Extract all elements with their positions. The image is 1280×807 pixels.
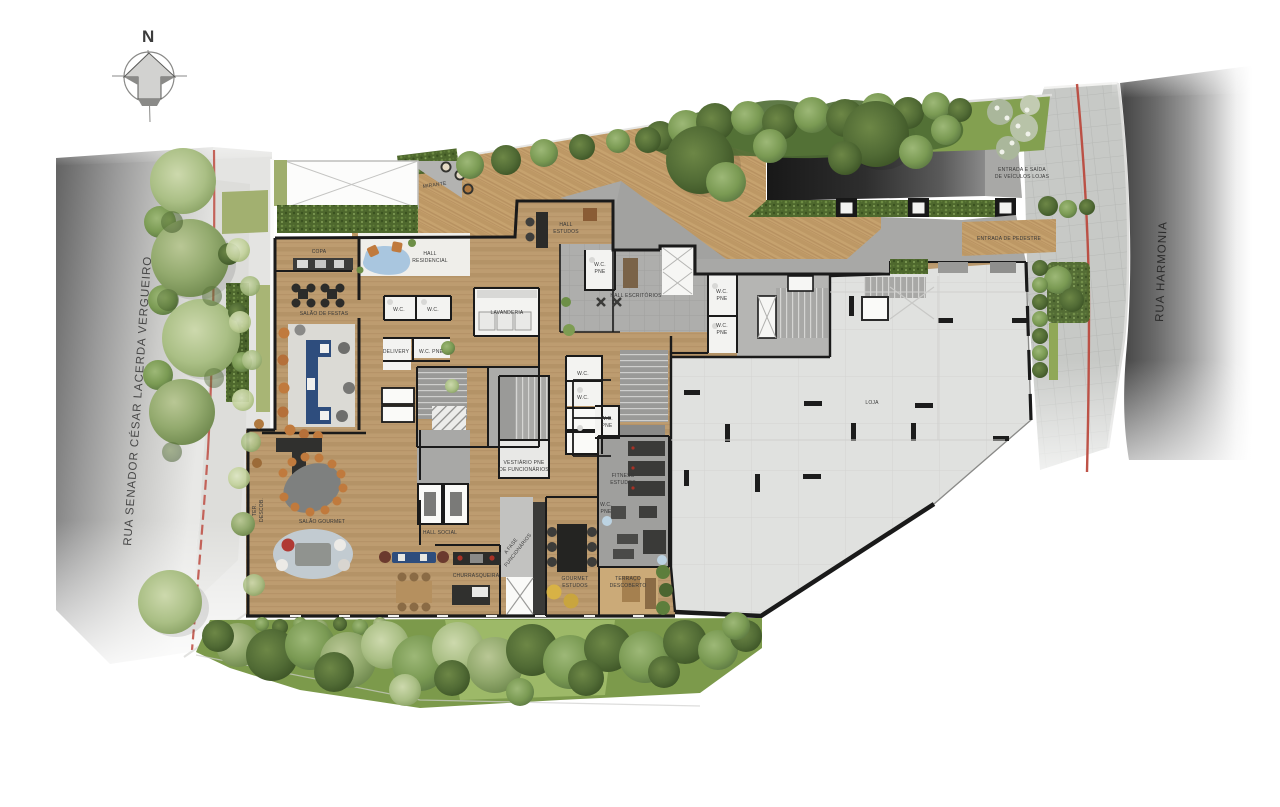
- svg-text:PNE: PNE: [595, 269, 606, 275]
- svg-text:W.C.: W.C.: [716, 289, 728, 295]
- svg-text:DE FUNCIONÁRIOS: DE FUNCIONÁRIOS: [499, 466, 549, 473]
- svg-text:W.C.: W.C.: [601, 416, 613, 422]
- svg-text:RESIDENCIAL: RESIDENCIAL: [412, 258, 448, 264]
- svg-text:COPA: COPA: [312, 249, 327, 255]
- svg-text:W.C.: W.C.: [600, 502, 612, 508]
- svg-text:PNE: PNE: [717, 296, 728, 302]
- svg-text:PNE: PNE: [717, 330, 728, 336]
- svg-text:GOURMET: GOURMET: [562, 576, 589, 582]
- svg-text:SALÃO GOURMET: SALÃO GOURMET: [299, 518, 345, 525]
- svg-text:W.C. PNE: W.C. PNE: [419, 349, 444, 355]
- svg-text:PNE: PNE: [601, 509, 612, 515]
- svg-text:W.C.: W.C.: [716, 323, 728, 329]
- svg-text:W.C.: W.C.: [594, 262, 606, 268]
- svg-text:LOJA: LOJA: [865, 400, 879, 406]
- svg-text:SALÃO DE FESTAS: SALÃO DE FESTAS: [300, 310, 349, 317]
- svg-text:HALL SOCIAL: HALL SOCIAL: [423, 530, 457, 536]
- svg-text:HALL ESCRITÓRIOS: HALL ESCRITÓRIOS: [610, 292, 662, 299]
- svg-text:ESTUDOS: ESTUDOS: [562, 583, 588, 589]
- svg-text:DELIVERY: DELIVERY: [383, 349, 410, 355]
- svg-text:W.C.: W.C.: [427, 307, 439, 313]
- svg-text:ESTUDOS: ESTUDOS: [610, 480, 636, 486]
- svg-text:W.C.: W.C.: [577, 395, 589, 401]
- svg-text:DESCOBERTO: DESCOBERTO: [610, 583, 647, 589]
- svg-text:DESCOB.: DESCOB.: [259, 498, 265, 522]
- svg-text:VESTIÁRIO PNE: VESTIÁRIO PNE: [504, 459, 545, 466]
- svg-text:ENTRADA E SAÍDA: ENTRADA E SAÍDA: [998, 166, 1046, 173]
- svg-text:HALL: HALL: [559, 222, 572, 228]
- svg-text:ENTRADA DE PEDESTRE: ENTRADA DE PEDESTRE: [977, 236, 1042, 242]
- svg-text:LAVANDERIA: LAVANDERIA: [491, 310, 524, 316]
- svg-text:FITNESS: FITNESS: [612, 473, 635, 479]
- svg-text:PNE: PNE: [602, 423, 613, 429]
- svg-text:TER.: TER.: [252, 504, 258, 516]
- svg-text:HALL: HALL: [423, 251, 436, 257]
- svg-text:DE VEÍCULOS LOJAS: DE VEÍCULOS LOJAS: [995, 173, 1050, 180]
- svg-text:W.C.: W.C.: [393, 307, 405, 313]
- svg-text:TERRAÇO: TERRAÇO: [615, 576, 641, 582]
- svg-text:W.C.: W.C.: [577, 371, 589, 377]
- svg-text:ESTUDOS: ESTUDOS: [553, 229, 579, 235]
- svg-text:CHURRASQUEIRA: CHURRASQUEIRA: [453, 573, 500, 579]
- svg-text:N: N: [142, 27, 154, 46]
